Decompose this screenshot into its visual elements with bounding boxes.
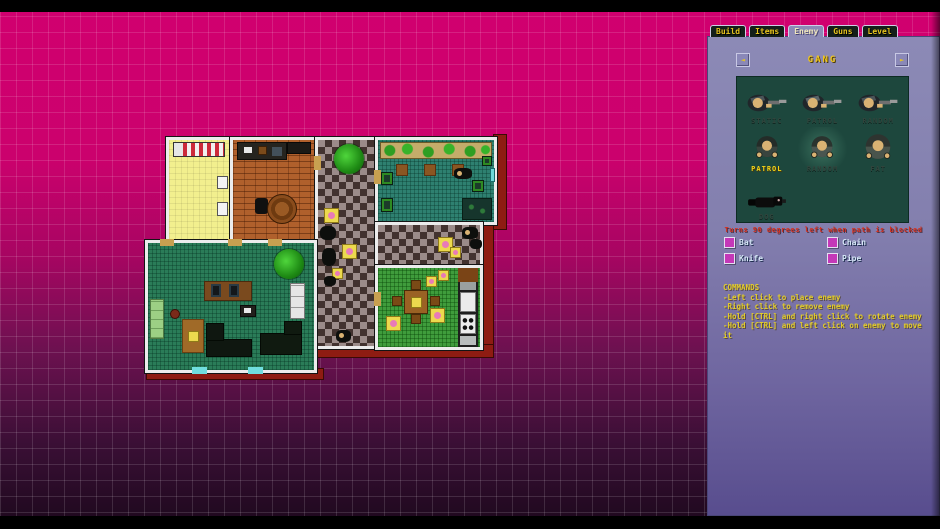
tab-guns[interactable]: Guns xyxy=(827,25,858,37)
enemy-figure[interactable] xyxy=(336,330,351,342)
side-table xyxy=(240,305,256,317)
dining-table xyxy=(404,290,428,314)
bed xyxy=(173,142,225,157)
magazine xyxy=(244,308,251,313)
letterbox-bottom xyxy=(0,516,940,529)
enemy-group-title: GANG xyxy=(808,55,838,65)
enemy-figure[interactable] xyxy=(462,227,478,239)
editor-tab-bar: Build Items Enemy Guns Level xyxy=(710,25,898,37)
enemy-type-label: RANDOM xyxy=(807,165,838,173)
black-couch xyxy=(206,323,224,341)
weapon-label: Pipe xyxy=(842,254,861,263)
dog-sprite-icon xyxy=(745,193,789,211)
dining-chair xyxy=(430,296,440,306)
item-pickup[interactable] xyxy=(342,244,357,259)
item-pickup[interactable] xyxy=(450,247,461,258)
melee-sprite-icon xyxy=(751,132,783,163)
doorway-marker xyxy=(248,367,263,374)
enemy-type-random-melee[interactable]: RANDOM xyxy=(795,127,851,175)
plant xyxy=(274,249,304,279)
fat-sprite-icon xyxy=(861,132,895,163)
enemy-type-fat[interactable]: FAT xyxy=(850,127,906,175)
room-office[interactable] xyxy=(230,137,318,243)
enemy-type-label: DOG xyxy=(759,213,775,221)
black-couch xyxy=(260,333,302,355)
item-pickup[interactable] xyxy=(438,270,449,281)
work-desk xyxy=(204,281,252,301)
tab-enemy[interactable]: Enemy xyxy=(788,25,824,37)
enemy-type-label: PATROL xyxy=(751,165,782,173)
counter-top xyxy=(458,268,478,282)
command-line: -Right click to remove enemy xyxy=(723,302,935,312)
doorway-marker xyxy=(192,367,207,374)
stove xyxy=(460,314,476,334)
body[interactable] xyxy=(320,226,336,240)
room-bedroom[interactable] xyxy=(166,137,233,243)
sink xyxy=(460,282,476,290)
enemy-type-dog[interactable]: DOG xyxy=(739,175,795,223)
gunman-sprite-icon xyxy=(798,91,846,115)
doorway xyxy=(314,156,321,170)
level-map[interactable] xyxy=(145,133,507,380)
enemy-type-label: STATIC xyxy=(751,117,782,125)
weapon-option-knife: Knife xyxy=(724,253,827,264)
doorway xyxy=(374,292,381,306)
sink xyxy=(217,202,228,216)
enemy-figure[interactable] xyxy=(454,168,472,179)
item-pickup[interactable] xyxy=(386,316,401,331)
gunman-sprite-icon xyxy=(743,91,791,115)
paper xyxy=(244,147,252,153)
tab-items[interactable]: Items xyxy=(749,25,785,37)
tab-level[interactable]: Level xyxy=(862,25,898,37)
shelf xyxy=(287,142,311,154)
weapon-label: Knife xyxy=(739,254,763,263)
doorway xyxy=(268,239,282,246)
checkbox-pipe[interactable] xyxy=(827,253,838,264)
weapon-option-bat: Bat xyxy=(724,237,827,248)
low-table xyxy=(462,198,492,220)
black-couch xyxy=(284,321,302,335)
wall-item xyxy=(490,168,495,182)
cabinet xyxy=(290,283,305,319)
weapon-option-chain: Chain xyxy=(827,237,929,248)
checkbox-chain[interactable] xyxy=(827,237,838,248)
item-pickup[interactable] xyxy=(426,276,437,287)
melee-sprite-icon xyxy=(806,132,838,163)
enemy-type-label: PATROL xyxy=(807,117,838,125)
enemy-type-static[interactable]: STATIC xyxy=(739,79,795,127)
command-line: -Hold [CTRL] and right click to rotate e… xyxy=(723,312,935,322)
wood-table xyxy=(182,319,204,353)
black-couch xyxy=(206,339,252,357)
chair xyxy=(255,198,268,214)
next-group-button[interactable]: ► xyxy=(895,53,909,67)
enemy-group-header: ◄ GANG ► xyxy=(736,53,909,67)
monitor xyxy=(229,284,239,297)
doorway xyxy=(160,239,174,246)
command-line: -Hold [CTRL] and left click on enemy to … xyxy=(723,321,935,340)
plant xyxy=(334,144,364,174)
weapon-label: Chain xyxy=(842,238,866,247)
doorway xyxy=(228,239,242,246)
kitchen-counter xyxy=(458,268,478,347)
toilet xyxy=(217,176,228,189)
enemy-type-patrol-melee[interactable]: PATROL xyxy=(739,127,795,175)
stool xyxy=(424,164,436,176)
commands-help: COMMANDS -Left click to place enemy -Rig… xyxy=(723,283,935,340)
room-hallway[interactable] xyxy=(315,137,378,349)
stool xyxy=(396,164,408,176)
flower-pot xyxy=(170,309,180,319)
plant-pot xyxy=(482,156,492,166)
room-lounge[interactable] xyxy=(375,137,497,225)
enemy-type-selector: STATIC PATROL RANDOM PATROL RANDOM FAT xyxy=(736,76,909,223)
body[interactable] xyxy=(324,276,336,286)
room-living[interactable] xyxy=(145,240,317,373)
weapon-options: Bat Chain Knife Pipe xyxy=(724,237,929,264)
letterbox-top xyxy=(0,0,940,12)
enemy-type-label: FAT xyxy=(870,165,886,173)
monitor xyxy=(272,147,282,156)
monitor xyxy=(211,284,221,297)
doorway xyxy=(374,170,381,184)
dishwasher xyxy=(460,336,476,345)
enemy-type-random-gun[interactable]: RANDOM xyxy=(850,79,906,127)
level-editor-screen: Build Items Enemy Guns Level ◄ GANG ► ST… xyxy=(0,0,940,529)
commands-title: COMMANDS xyxy=(723,283,935,293)
room-kitchen[interactable] xyxy=(375,265,483,350)
gunman-sprite-icon xyxy=(854,91,902,115)
office-desk xyxy=(237,142,287,160)
body[interactable] xyxy=(322,248,336,266)
checkbox-knife[interactable] xyxy=(724,253,735,264)
behavior-hint-text: Turns 90 degrees left when path is block… xyxy=(708,226,939,234)
dining-chair xyxy=(392,296,402,306)
dining-chair xyxy=(411,280,421,290)
note xyxy=(411,297,422,308)
command-line: -Left click to place enemy xyxy=(723,293,935,303)
crate xyxy=(258,146,267,155)
item-pickup[interactable] xyxy=(430,308,445,323)
checkbox-bat[interactable] xyxy=(724,237,735,248)
weapon-label: Bat xyxy=(739,238,753,247)
body[interactable] xyxy=(470,239,482,249)
enemy-type-label: RANDOM xyxy=(863,117,894,125)
plant-pot xyxy=(472,180,484,192)
dining-chair xyxy=(411,314,421,324)
item-pickup[interactable] xyxy=(324,208,339,223)
note xyxy=(188,331,199,342)
room-mid-hall[interactable] xyxy=(375,222,483,268)
tab-build[interactable]: Build xyxy=(710,25,746,37)
enemy-type-patrol-gun[interactable]: PATROL xyxy=(795,79,851,127)
plant-pot xyxy=(381,198,393,212)
prev-group-button[interactable]: ◄ xyxy=(736,53,750,67)
weapon-option-pipe: Pipe xyxy=(827,253,929,264)
fridge xyxy=(460,292,476,312)
enemy-panel: ◄ GANG ► STATIC PATROL RANDOM PATROL xyxy=(707,36,940,516)
green-sofa xyxy=(150,299,164,339)
round-table xyxy=(267,194,297,224)
planter xyxy=(380,142,492,159)
plant-pot xyxy=(381,172,393,185)
